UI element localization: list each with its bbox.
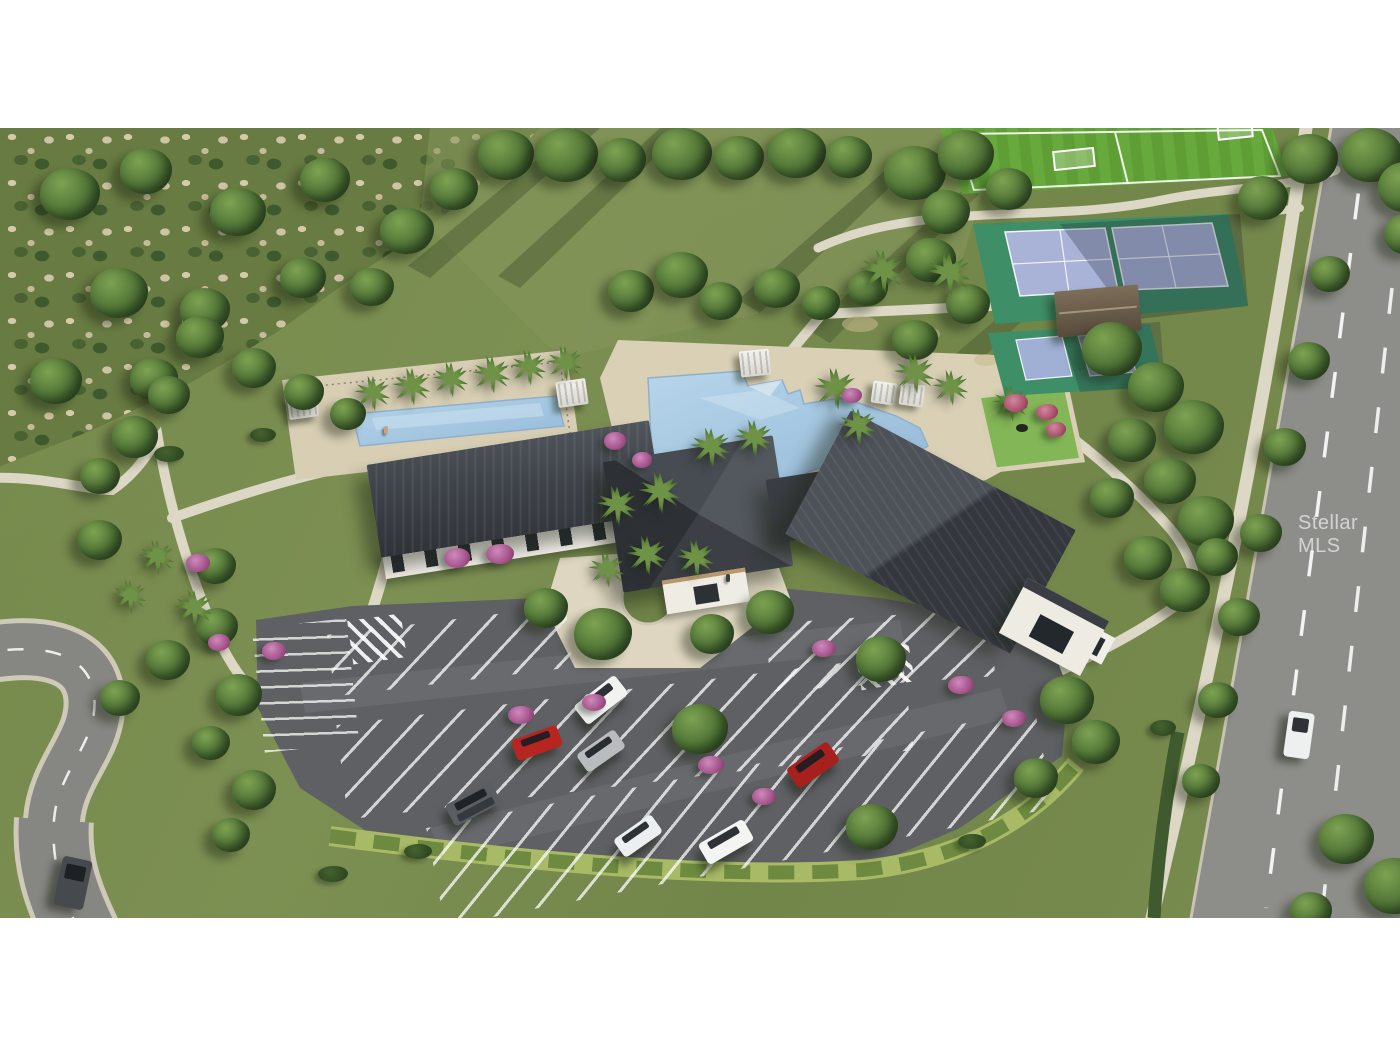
palm-tree [692, 428, 730, 466]
palm-tree [176, 590, 212, 626]
palm-tree [356, 376, 390, 410]
cabana [555, 378, 588, 408]
palm-tree [598, 486, 636, 524]
garage-door [1029, 614, 1075, 654]
palm-tree [548, 346, 582, 380]
palm-tree [590, 552, 624, 586]
palm-tree [512, 350, 546, 384]
palm-tree [114, 580, 146, 612]
person [726, 574, 730, 582]
palm-tree [640, 472, 680, 512]
mls-listing-photo: Stellar MLS [0, 0, 1400, 1050]
person [384, 426, 388, 434]
stellar-mls-watermark: Stellar MLS [1298, 512, 1400, 558]
palm-tree [628, 536, 666, 574]
palm-tree [678, 540, 714, 576]
palm-tree [928, 252, 970, 294]
palm-tree [434, 362, 468, 396]
palm-tree [896, 354, 934, 392]
palm-tree [934, 370, 968, 404]
cabana [871, 380, 898, 405]
palm-tree [862, 250, 904, 292]
palm-tree [474, 356, 510, 392]
palm-tree [840, 408, 876, 444]
palm-tree [394, 368, 430, 404]
palm-tree [140, 540, 174, 574]
aerial-rendering: Stellar MLS [0, 128, 1400, 918]
cabana [739, 349, 772, 378]
dog [1016, 424, 1028, 432]
soccer-goal [1053, 148, 1095, 170]
crosswalk [347, 613, 407, 664]
palm-tree [736, 420, 772, 456]
